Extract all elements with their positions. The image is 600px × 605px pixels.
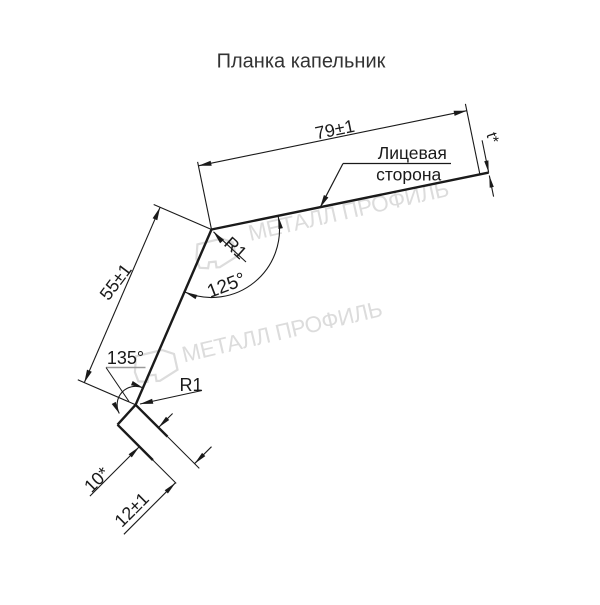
svg-text:125°: 125°	[204, 269, 248, 303]
svg-text:МЕТАЛЛ ПРОФИЛЬ: МЕТАЛЛ ПРОФИЛЬ	[179, 296, 384, 367]
svg-text:R1: R1	[220, 233, 250, 263]
svg-text:12±1: 12±1	[111, 489, 153, 531]
svg-text:Лицевая: Лицевая	[378, 143, 447, 163]
svg-text:сторона: сторона	[376, 165, 441, 185]
svg-text:10*: 10*	[80, 463, 113, 496]
svg-text:79±1: 79±1	[313, 116, 356, 144]
svg-text:t*: t*	[482, 130, 501, 145]
svg-text:135°: 135°	[107, 348, 144, 368]
svg-text:Планка капельник: Планка капельник	[217, 51, 386, 73]
svg-text:55±1: 55±1	[96, 260, 136, 304]
svg-text:R1: R1	[179, 375, 202, 395]
